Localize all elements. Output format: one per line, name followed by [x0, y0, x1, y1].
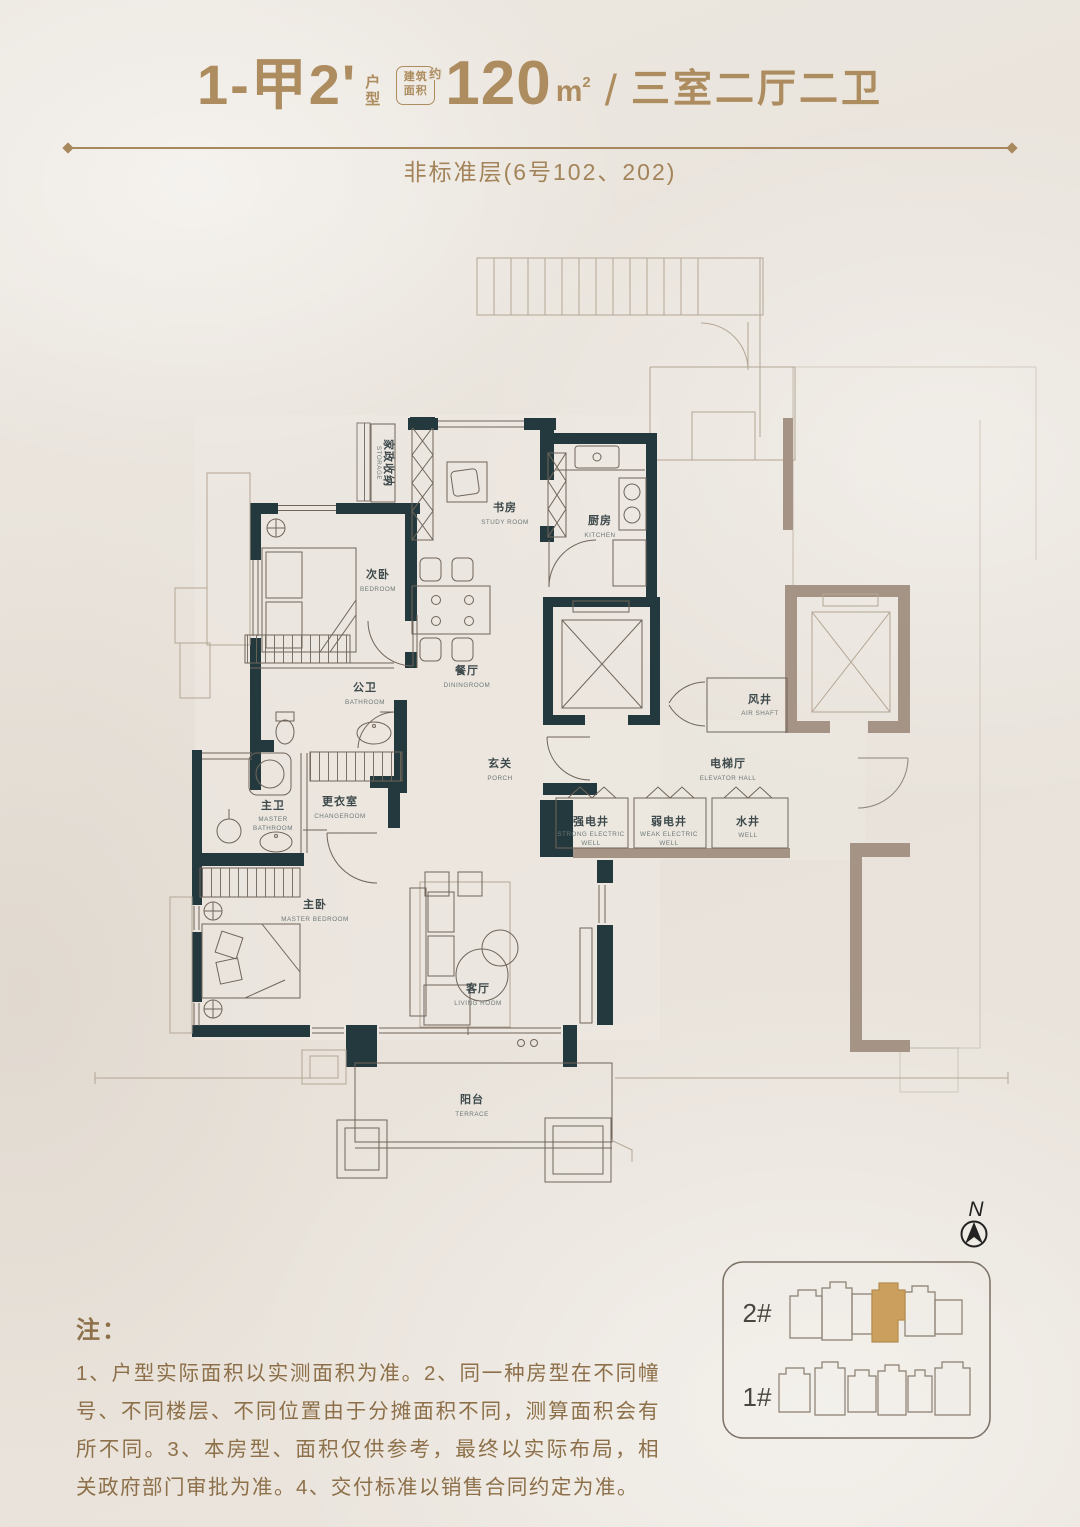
- svg-text:ELEVATOR HALL: ELEVATOR HALL: [700, 775, 757, 782]
- compass-n-label: N: [968, 1198, 984, 1221]
- svg-text:电梯厅: 电梯厅: [710, 756, 746, 770]
- room-label-porch: 玄关 PORCH: [487, 756, 512, 782]
- svg-text:公卫: 公卫: [353, 681, 377, 694]
- svg-text:MASTER BEDROOM: MASTER BEDROOM: [281, 916, 349, 923]
- svg-text:PORCH: PORCH: [487, 775, 512, 782]
- svg-text:TERRACE: TERRACE: [455, 1111, 489, 1118]
- svg-text:WEAK ELECTRIC: WEAK ELECTRIC: [640, 831, 698, 838]
- svg-text:STORAGE: STORAGE: [375, 446, 382, 480]
- svg-text:WELL: WELL: [738, 832, 757, 839]
- svg-text:STUDY ROOM: STUDY ROOM: [481, 519, 529, 526]
- svg-text:玄关: 玄关: [488, 756, 512, 770]
- room-label-terrace: 阳台 TERRACE: [455, 1092, 489, 1118]
- svg-text:WELL: WELL: [581, 840, 600, 847]
- svg-text:家政收纳: 家政收纳: [382, 439, 396, 487]
- room-label-air-shaft: 风井 AIR SHAFT: [741, 692, 778, 717]
- building-1-label: 1#: [743, 1382, 772, 1412]
- svg-text:客厅: 客厅: [465, 981, 490, 995]
- svg-text:更衣室: 更衣室: [322, 794, 358, 808]
- north-arrow-icon: [965, 1222, 983, 1244]
- floorplan-poster: 1-甲2' 户 型 建筑 面积 约 120 m2 / 三室二厅二卫 非标准层(6…: [0, 0, 1080, 1527]
- svg-text:WELL: WELL: [659, 840, 678, 847]
- svg-text:水井: 水井: [736, 814, 760, 828]
- svg-text:阳台: 阳台: [460, 1092, 484, 1106]
- svg-text:厨房: 厨房: [588, 513, 612, 527]
- svg-text:主卫: 主卫: [261, 798, 285, 812]
- svg-text:BEDROOM: BEDROOM: [360, 586, 396, 593]
- svg-text:AIR SHAFT: AIR SHAFT: [741, 710, 778, 717]
- svg-text:CHANGEROOM: CHANGEROOM: [314, 813, 366, 820]
- building-row-1: [779, 1362, 970, 1415]
- room-label-water-well: 水井 WELL: [736, 814, 760, 839]
- svg-text:书房: 书房: [493, 500, 517, 514]
- notes-body: 1、户型实际面积以实测面积为准。2、同一种房型在不同幢号、不同楼层、不同位置由于…: [76, 1355, 660, 1507]
- floor-plan-canvas: 次卧 BEDROOM 书房 STUDY ROOM 厨房 KITCHEN 餐厅 D…: [0, 0, 1080, 1527]
- notes: 注： 1、户型实际面积以实测面积为准。2、同一种房型在不同幢号、不同楼层、不同位…: [76, 1310, 660, 1507]
- svg-text:风井: 风井: [748, 692, 772, 706]
- svg-text:DININGROOM: DININGROOM: [444, 682, 491, 689]
- svg-text:BATHROOM: BATHROOM: [253, 825, 293, 832]
- compass: N: [962, 1198, 987, 1247]
- notes-title: 注：: [76, 1310, 660, 1345]
- room-label-kitchen: 厨房 KITCHEN: [584, 513, 615, 539]
- site-plan: 2# 1#: [723, 1262, 990, 1438]
- svg-text:KITCHEN: KITCHEN: [584, 532, 615, 539]
- svg-text:强电井: 强电井: [573, 814, 609, 828]
- terrace-structure: [95, 1050, 1008, 1182]
- building-2-label: 2#: [743, 1298, 772, 1328]
- svg-text:BATHROOM: BATHROOM: [345, 699, 385, 706]
- svg-text:主卧: 主卧: [303, 897, 327, 911]
- svg-text:次卧: 次卧: [366, 567, 390, 581]
- svg-text:STRONG ELECTRIC: STRONG ELECTRIC: [557, 831, 624, 838]
- highlighted-building: [872, 1283, 905, 1342]
- svg-text:LIVING ROOM: LIVING ROOM: [454, 1000, 501, 1007]
- svg-text:MASTER: MASTER: [258, 816, 287, 823]
- svg-text:弱电井: 弱电井: [651, 814, 687, 828]
- svg-text:餐厅: 餐厅: [454, 663, 479, 677]
- floor-fill: [195, 415, 865, 1040]
